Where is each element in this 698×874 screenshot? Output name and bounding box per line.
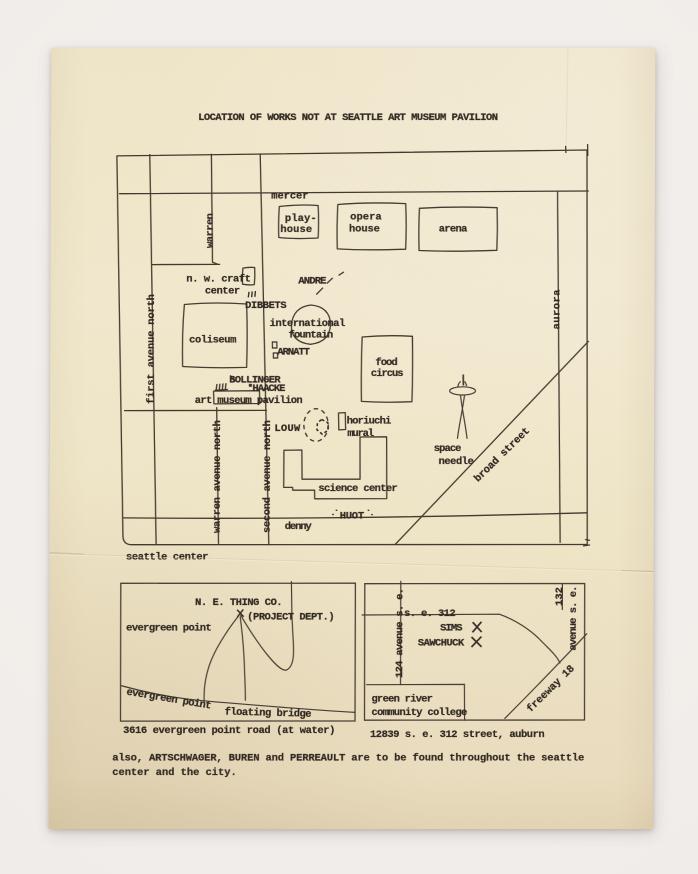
svg-text:132: 132 bbox=[554, 587, 566, 606]
svg-text:second avenue north: second avenue north bbox=[262, 420, 274, 533]
svg-text:green river: green river bbox=[371, 693, 433, 705]
svg-text:ARNATT: ARNATT bbox=[277, 347, 310, 359]
svg-text:opera: opera bbox=[350, 211, 382, 223]
svg-text:SAWCHUCK: SAWCHUCK bbox=[418, 638, 465, 650]
svg-text:LOCATION OF WORKS NOT AT SEATT: LOCATION OF WORKS NOT AT SEATTLE ART MUS… bbox=[198, 112, 498, 124]
svg-text:ANDRE: ANDRE bbox=[298, 275, 326, 287]
svg-text:124 avenue s. e.: 124 avenue s. e. bbox=[394, 588, 406, 678]
svg-text:N. E. THING CO.: N. E. THING CO. bbox=[195, 597, 283, 609]
svg-text:HUOT: HUOT bbox=[340, 511, 364, 523]
svg-text:3616 evergreen point road (at: 3616 evergreen point road (at water) bbox=[123, 725, 335, 737]
svg-text:warren: warren bbox=[205, 213, 217, 248]
svg-text:evergreen point: evergreen point bbox=[126, 623, 212, 635]
svg-text:space: space bbox=[434, 443, 462, 455]
svg-text:mural: mural bbox=[347, 428, 374, 440]
svg-text:mercer: mercer bbox=[271, 191, 308, 203]
svg-text:warren avenue north: warren avenue north bbox=[211, 420, 223, 533]
svg-text:also, ARTSCHWAGER, BUREN and P: also, ARTSCHWAGER, BUREN and PERREAULT a… bbox=[112, 752, 584, 764]
svg-text:HAACKE: HAACKE bbox=[252, 383, 285, 395]
svg-text:community college: community college bbox=[371, 707, 467, 719]
svg-text:international: international bbox=[270, 318, 346, 330]
svg-text:s. e. 312: s. e. 312 bbox=[404, 608, 456, 620]
svg-text:science center: science center bbox=[318, 483, 398, 495]
svg-text:center and the city.: center and the city. bbox=[112, 767, 237, 779]
svg-text:center: center bbox=[205, 286, 240, 298]
svg-text:denny: denny bbox=[285, 521, 313, 533]
svg-text:coliseum: coliseum bbox=[189, 334, 236, 346]
svg-text:DIBBETS: DIBBETS bbox=[245, 300, 287, 312]
svg-text:horiuchi: horiuchi bbox=[347, 415, 392, 427]
svg-text:needle: needle bbox=[438, 456, 473, 468]
svg-text:house: house bbox=[349, 223, 380, 235]
svg-text:floating bridge: floating bridge bbox=[224, 707, 311, 721]
svg-text:LOUW: LOUW bbox=[274, 423, 301, 435]
svg-text:circus: circus bbox=[371, 368, 404, 380]
svg-text:fountain: fountain bbox=[288, 329, 333, 341]
svg-text:food: food bbox=[375, 357, 397, 369]
svg-text:play-: play- bbox=[285, 213, 317, 225]
svg-text:12839 s. e. 312 street, auburn: 12839 s. e. 312 street, auburn bbox=[370, 729, 545, 741]
svg-text:n. w. craft: n. w. craft bbox=[186, 274, 251, 286]
svg-text:art museum pavilion: art museum pavilion bbox=[195, 395, 303, 407]
svg-text:aurora: aurora bbox=[551, 289, 563, 330]
svg-text:house: house bbox=[280, 224, 312, 236]
svg-text:first avenue north: first avenue north bbox=[146, 294, 158, 404]
svg-text:(PROJECT DEPT.): (PROJECT DEPT.) bbox=[247, 611, 335, 623]
svg-text:avenue s. e.: avenue s. e. bbox=[568, 586, 580, 651]
svg-text:arena: arena bbox=[439, 223, 468, 235]
svg-text:SIMS: SIMS bbox=[440, 623, 462, 635]
